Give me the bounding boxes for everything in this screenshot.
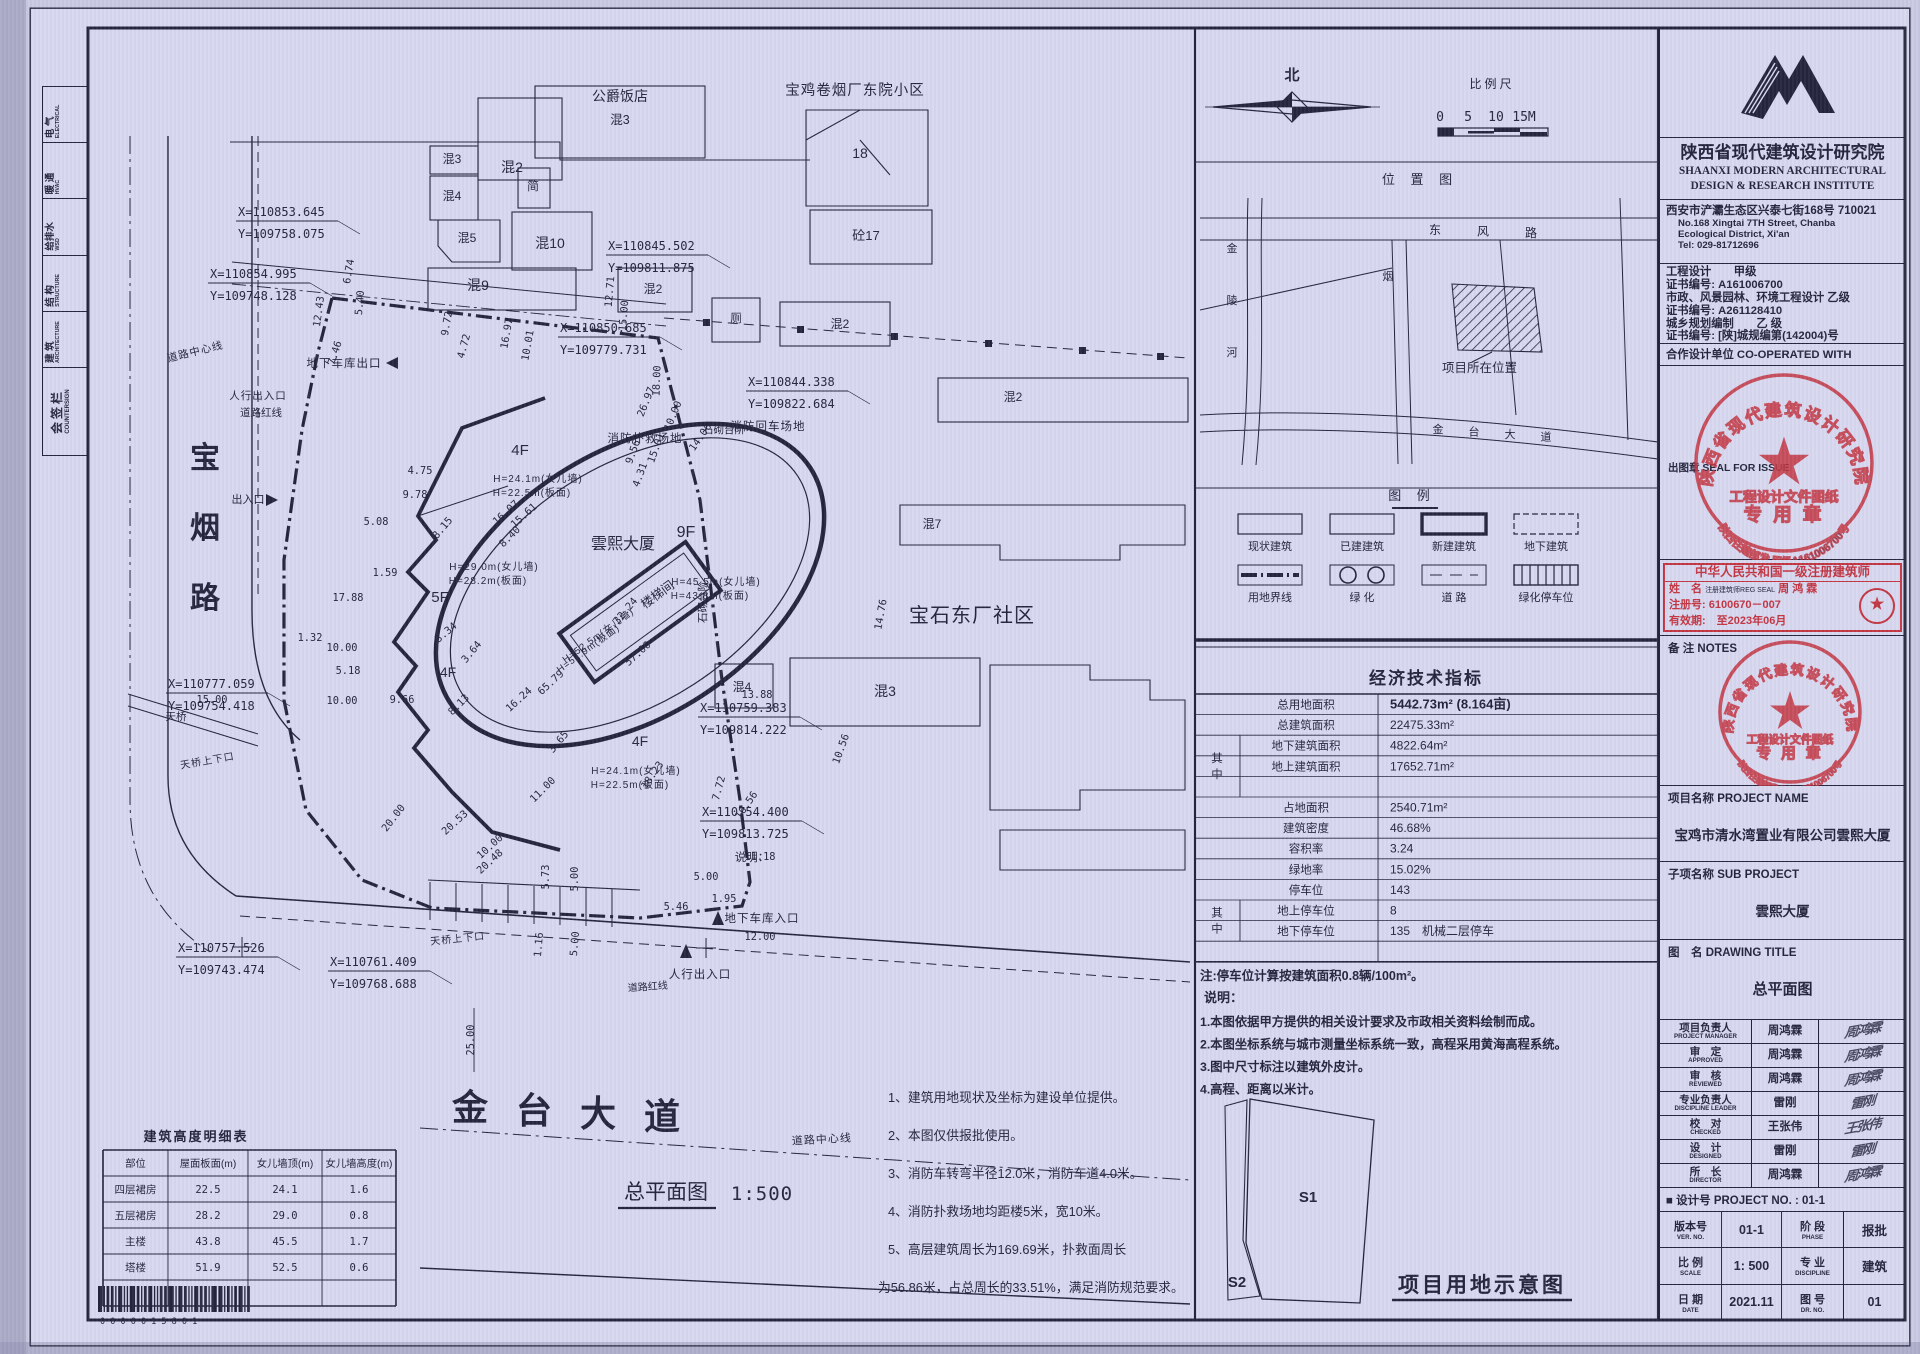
- plan-dimension: 5.18: [336, 665, 361, 677]
- plan-label: 宝鸡卷烟厂东院小区: [785, 82, 925, 99]
- plan-label: 道路中心线: [791, 1130, 852, 1147]
- economic-row-value: 2540.71m²: [1390, 801, 1447, 815]
- height-table-header: 女儿墙高度(m): [326, 1157, 393, 1170]
- qualification-line: 工程设计 甲级: [1666, 266, 1899, 279]
- location-map: [1200, 198, 1658, 465]
- coordinate-label: Y=109758.075: [238, 227, 325, 241]
- registered-architect-section: 中华人民共和国一级注册建筑师 姓 名 注册建筑师REG SEAL 周 鸿 霖 注…: [1660, 560, 1905, 636]
- plan-label: 混3: [874, 683, 896, 699]
- plan-label: 混2: [644, 282, 663, 296]
- plan-dimension: 65.79: [535, 668, 566, 698]
- plan-dimension: 25.00: [465, 1025, 477, 1056]
- company-address: 西安市浐灞生态区兴泰七街168号 710021 No.168 Xingtai 7…: [1660, 200, 1905, 264]
- plan-label: 台: [516, 1090, 552, 1131]
- signature-row: 所 长DIRECTOR周鸿霖周鸿霖: [1660, 1164, 1905, 1188]
- plan-note: 1、建筑用地现状及坐标为建设单位提供。: [888, 1090, 1125, 1105]
- map-road-label: 河: [1227, 346, 1238, 359]
- plan-dimension: 9.66: [390, 694, 415, 706]
- coordinate-label: X=110757.526: [178, 941, 265, 955]
- plan-label: 混3: [443, 152, 462, 166]
- plan-dimension: 5.73: [540, 865, 552, 890]
- general-note: 2.本图坐标系统与城市测量坐标系统一致，高程采用黄海高程系统。: [1200, 1037, 1567, 1052]
- coordinate-label: Y=109814.222: [700, 723, 787, 737]
- plan-dimension: 5.00: [569, 867, 581, 892]
- parcel-s2-label: S2: [1228, 1274, 1246, 1291]
- plan-label: 大: [580, 1093, 616, 1134]
- project-name-label: 项目名称 PROJECT NAME: [1668, 790, 1809, 806]
- qualification-line: 证书编号: [陕]城规编第(142004)号: [1666, 330, 1899, 343]
- plan-dimension: 15.00: [197, 694, 228, 706]
- issue-seal-section: 出图章 SEAL FOR ISSUE 陕西省现代建筑设计研究院工程设计文件图纸专…: [1660, 366, 1905, 560]
- scale-bar: 北比例尺051015M: [1284, 67, 1548, 136]
- qualification-line: 城乡规划编制 乙 级: [1666, 318, 1899, 331]
- plan-note: 4、消防扑救场地均距楼5米，宽10米。: [888, 1204, 1108, 1219]
- plan-label: 消防回车场地: [731, 419, 806, 433]
- plan-dimension: 17.88: [333, 592, 364, 604]
- plan-labels: 公爵饭店混3宝鸡卷烟厂东院小区混3混2简混4混5混10混9混218砼17厕混2混…: [166, 82, 1036, 1205]
- plan-label: 混3: [610, 113, 630, 127]
- height-table-cell: 主楼: [125, 1235, 146, 1248]
- plan-details: [232, 357, 724, 1072]
- plan-label: 公爵饭店: [592, 88, 648, 104]
- height-table-cell: 五层裙房: [115, 1209, 157, 1222]
- plan-label: 4F: [511, 442, 529, 459]
- barcode-digits: 0 0 0 0 0 1 5 8 0 1: [100, 1317, 197, 1327]
- plan-dimension: 20.00: [379, 802, 408, 834]
- land-diagram-title: 项目用地示意图: [1398, 1273, 1566, 1297]
- scale-tick: 5: [1464, 110, 1472, 125]
- economic-group-label: 中: [1211, 923, 1223, 936]
- plan-label: 地下车库入口: [725, 911, 800, 925]
- scan-edge-bottom: [0, 1342, 1920, 1354]
- coordinate-label: X=110845.502: [608, 239, 695, 253]
- plan-dimension: 5.00: [568, 931, 582, 957]
- map-road-label: 陵: [1227, 294, 1238, 307]
- qualification-line: 证书编号: A161006700: [1666, 279, 1899, 292]
- plan-label: 人行出入口: [229, 389, 287, 402]
- plan-note: 5、高层建筑周长为169.69米，扑救面周长: [888, 1242, 1126, 1257]
- site-boundary-line: [284, 298, 750, 918]
- coordinate-label: Y=109748.128: [210, 289, 297, 303]
- height-table-cell: 塔楼: [125, 1261, 146, 1274]
- plan-label: 天桥上下口: [179, 750, 235, 771]
- plan-label: 地下车库出口: [307, 356, 382, 370]
- coordinate-label: Y=109822.684: [748, 397, 835, 411]
- plan-label: 道路红线: [240, 406, 282, 419]
- economic-row-value: 46.68%: [1390, 821, 1431, 835]
- stamp-line: 专 用 章: [1744, 504, 1825, 525]
- map-road-label: 金: [1433, 422, 1444, 436]
- coordinate-callouts: X=110853.645Y=109758.075X=110854.995Y=10…: [166, 205, 870, 991]
- company-logo: [1660, 28, 1905, 138]
- height-table-header: 屋面板面(m): [180, 1157, 237, 1170]
- coordinate-label: X=110850.685: [560, 321, 647, 335]
- map-road-label: 东: [1429, 223, 1441, 237]
- height-table-title: 建筑高度明细表: [143, 1129, 248, 1144]
- coordinate-label: X=110759.383: [700, 701, 787, 715]
- plan-dimension: 3.64: [459, 639, 484, 666]
- plan-label: 混4: [443, 189, 462, 203]
- plan-dimension: 20.53: [439, 808, 470, 838]
- plan-label: 消防扑救场地: [608, 431, 683, 445]
- plan-dimension: 4.72: [455, 333, 473, 360]
- company-name-en: SHAANXI MODERN ARCHITECTURALDESIGN & RES…: [1660, 164, 1905, 200]
- economic-row-label: 地下建筑面积: [1272, 739, 1341, 753]
- coordinate-label: X=110777.059: [168, 677, 255, 691]
- plan-dimension: 5.00: [694, 871, 719, 883]
- signature-row: 设 计DESIGNED雷刚雷刚: [1660, 1140, 1905, 1164]
- plan-dimension: 5.08: [364, 516, 389, 528]
- economic-row-label: 地下停车位: [1277, 924, 1335, 938]
- drawing-sheet: X=110853.645Y=109758.075X=110854.995Y=10…: [0, 0, 1920, 1354]
- economic-row-value: 143: [1390, 883, 1410, 897]
- scale-tick: 15M: [1512, 110, 1536, 125]
- plan-dimension: 9.78: [403, 489, 428, 501]
- stamp-line: 工程设计文件图纸: [1747, 732, 1834, 746]
- signature-row: 校 对CHECKED王张伟王张伟: [1660, 1116, 1905, 1140]
- map-road-label: 大: [1505, 427, 1516, 441]
- plan-dimension: 5.40: [353, 290, 367, 316]
- economic-row-label: 总用地面积: [1277, 698, 1335, 712]
- height-table-cell: 1.6: [350, 1184, 369, 1196]
- map-road-label: 风: [1477, 225, 1489, 239]
- plan-dimension: 1.16: [532, 932, 546, 958]
- economic-row-label: 占地面积: [1283, 801, 1329, 815]
- plan-dimension: 3.34: [433, 620, 460, 645]
- land-use-diagram: [1225, 1099, 1572, 1303]
- plan-label: 混2: [501, 159, 523, 175]
- height-table-cell: 52.5: [272, 1262, 297, 1274]
- notes-title: 说明：: [1204, 990, 1243, 1005]
- height-table-cell: 29.0: [272, 1210, 297, 1222]
- general-note: 4.高程、距离以米计。: [1200, 1082, 1321, 1097]
- coordinate-label: Y=109779.731: [560, 343, 647, 357]
- economic-row-label: 地上停车位: [1277, 904, 1335, 918]
- version-scale-grid: 版本号VER. NO.01-1阶 段PHASE报批比 例SCALE1: 500专…: [1660, 1212, 1905, 1320]
- plan-label: 4F: [632, 733, 648, 749]
- grid-row: 日 期DATE2021.11图 号DR. NO.01: [1660, 1285, 1905, 1320]
- plan-dimension: 11.00: [528, 775, 558, 805]
- map-road-label: 台: [1469, 425, 1480, 439]
- coordinate-label: Y=109811.875: [608, 261, 695, 275]
- plan-dimension: 9.72: [439, 310, 455, 337]
- plan-notes: 1、建筑用地现状及坐标为建设单位提供。2、本图仅供报批使用。3、消防车转弯半径1…: [878, 1090, 1184, 1295]
- middle-panel-rules: [1195, 162, 1658, 1078]
- general-notes: 注:停车位计算按建筑面积0.8辆/100m²。说明：1.本图依据甲方提供的相关设…: [1200, 968, 1567, 1097]
- plan-label: 9F: [677, 524, 696, 541]
- scale-tick: 0: [1436, 110, 1444, 125]
- sub-project-value: 雲熙大厦: [1660, 900, 1905, 920]
- plan-label: 路: [190, 582, 221, 615]
- qualification-line: 市政、风景园林、环境工程设计 乙级: [1666, 292, 1899, 305]
- signature-row: 项目负责人PROJECT MANAGER周鸿霖周鸿霖: [1660, 1020, 1905, 1044]
- plan-label: H=28.2m(板面): [449, 574, 528, 587]
- plan-label: 砼17: [852, 228, 879, 243]
- cooperation-label: 合作设计单位 CO-OPERATED WITH: [1660, 344, 1905, 366]
- plan-label: 烟: [190, 512, 220, 545]
- qualifications: 工程设计 甲级证书编号: A161006700市政、风景园林、环境工程设计 乙级…: [1660, 264, 1905, 344]
- countersign-title: 会签栏 COUNTERSIGN: [43, 367, 87, 455]
- signature-row: 审 定APPROVED周鸿霖周鸿霖: [1660, 1044, 1905, 1068]
- plan-dimension: 16.97: [498, 317, 515, 350]
- plan-label: 宝石东厂社区: [909, 604, 1035, 627]
- drawing-title-value: 总平面图: [1660, 978, 1905, 999]
- title-block: 陕西省现代建筑设计研究院 SHAANXI MODERN ARCHITECTURA…: [1658, 28, 1905, 1320]
- plan-dimension: 5.46: [664, 901, 689, 913]
- plan-note: 3、消防车转弯半径12.0米，消防车道4.0米。: [888, 1166, 1143, 1181]
- coordinate-label: Y=109743.474: [178, 963, 265, 977]
- notes-section: 备 注 NOTES 陕西省现代建筑设计研究院工程设计文件图纸专 用 章陕西住建部…: [1660, 636, 1905, 786]
- plan-dimension: 10.00: [327, 695, 358, 707]
- notes-round-stamp: 陕西省现代建筑设计研究院工程设计文件图纸专 用 章陕西住建部发 甲级A16100…: [1690, 636, 1890, 786]
- height-table-cell: 0.8: [350, 1210, 369, 1222]
- economic-row-label: 容积率: [1289, 842, 1324, 856]
- signature-row: 审 核REVIEWED周鸿霖周鸿霖: [1660, 1068, 1905, 1092]
- plan-dimension: 6.74: [341, 258, 357, 285]
- plan-dimension: 1.95: [712, 893, 737, 905]
- plan-label: H=24.1m(女儿墙): [493, 472, 583, 485]
- economic-row-label: 停车位: [1289, 883, 1324, 897]
- plan-label: 18: [852, 145, 868, 161]
- economic-row-value: 5442.73m² (8.164亩): [1390, 697, 1511, 712]
- map-road-label: 金: [1227, 241, 1238, 255]
- economic-group-label: 其: [1211, 907, 1223, 920]
- parcel-s1-label: S1: [1299, 1189, 1317, 1206]
- plan-dimension: 16.24: [503, 685, 534, 715]
- parking-note: 注:停车位计算按建筑面积0.8辆/100m²。: [1200, 968, 1424, 983]
- economic-row-label: 绿地率: [1289, 862, 1324, 876]
- neighbor-buildings: [230, 86, 1188, 870]
- countersign-discipline: 建 筑ARCHITECTURE: [43, 311, 87, 367]
- plan-dimension: 10.01: [519, 329, 536, 362]
- economic-row-value: 135 机械二层停车: [1390, 923, 1494, 938]
- company-name-cn: 陕西省现代建筑设计研究院: [1660, 138, 1905, 164]
- plan-label: 1:500: [731, 1183, 793, 1205]
- land-use-diagram-labels: S1S2项目用地示意图: [1228, 1189, 1566, 1297]
- general-note: 1.本图依据甲方提供的相关设计要求及市政相关资料绘制而成。: [1200, 1014, 1542, 1029]
- map-road-label: 路: [1525, 225, 1537, 240]
- plan-label: 混10: [535, 235, 565, 251]
- sub-project-label: 子项名称 SUB PROJECT: [1668, 866, 1799, 882]
- countersign-discipline: 给排水WSD: [43, 198, 87, 254]
- economic-indicator-table: 经济技术指标总用地面积5442.73m² (8.164亩)总建筑面积22475.…: [1195, 668, 1658, 962]
- plan-label: 简: [527, 179, 539, 193]
- grid-row: 比 例SCALE1: 500专 业DISCIPLINE建筑: [1660, 1248, 1905, 1284]
- plan-label: H=43.8m(板面): [671, 589, 750, 602]
- plan-label: 4F: [440, 664, 456, 680]
- economic-row-label: 总建筑面积: [1277, 718, 1335, 732]
- economic-row-value: 15.02%: [1390, 862, 1431, 876]
- plan-dimension: 13.88: [742, 689, 773, 701]
- economic-row-value: 22475.33m²: [1390, 718, 1454, 732]
- countersign-strip: 会签栏 COUNTERSIGN 建 筑ARCHITECTURE结 构STRUCT…: [42, 86, 88, 456]
- plan-label: 金: [451, 1087, 489, 1128]
- plan-dimension: 12.43: [311, 295, 327, 327]
- building-height-table: 建筑高度明细表部位屋面板面(m)女儿墙顶(m)女儿墙高度(m)四层裙房22.52…: [103, 1129, 396, 1306]
- plan-dimension: 4.75: [408, 465, 433, 477]
- plan-dimension: 10.56: [830, 732, 852, 765]
- plan-label: 道路红线: [627, 979, 668, 995]
- plan-dimension: 1.59: [373, 567, 398, 579]
- height-table-cell: 22.5: [195, 1184, 220, 1196]
- plan-label: 出入口: [232, 492, 265, 506]
- location-map-title: 位 置 图: [1382, 172, 1458, 187]
- legend-label: 新建建筑: [1432, 539, 1476, 553]
- plan-dimension: 1.32: [298, 632, 323, 644]
- sub-project-section: 子项名称 SUB PROJECT 雲熙大厦: [1660, 862, 1905, 940]
- map-road-label: 烟: [1383, 269, 1394, 283]
- architect-emblem-icon: ★: [1859, 588, 1895, 624]
- plan-label: H=22.5m(板面): [591, 778, 670, 791]
- coordinate-label: Y=109768.688: [330, 977, 417, 991]
- legend-label: 已建建筑: [1340, 539, 1384, 553]
- plan-label: 宝: [190, 441, 220, 475]
- legend-label: 道 路: [1441, 590, 1466, 604]
- map-road-label: 道: [1541, 430, 1552, 444]
- height-table-cell: 43.8: [195, 1236, 220, 1248]
- plan-label: H=24.1m(女儿墙): [591, 764, 681, 777]
- grid-row: 版本号VER. NO.01-1阶 段PHASE报批: [1660, 1212, 1905, 1248]
- plan-label: 混2: [1004, 390, 1023, 404]
- scale-bar-title: 比例尺: [1469, 77, 1514, 91]
- north-label: 北: [1284, 67, 1299, 84]
- countersign-discipline: 电 气ELECTRICAL: [43, 87, 87, 142]
- drawing-title-label: 图 名 DRAWING TITLE: [1668, 944, 1796, 960]
- plan-label: 道: [644, 1096, 680, 1137]
- countersign-discipline: 结 构STRUCTURE: [43, 255, 87, 311]
- plan-dimension: 12.00: [745, 931, 776, 943]
- legend-label: 现状建筑: [1248, 539, 1292, 553]
- stamp-line: 工程设计文件图纸: [1730, 489, 1839, 505]
- coordinate-label: X=110761.409: [330, 955, 417, 969]
- general-note: 3.图中尺寸标注以建筑外皮计。: [1200, 1059, 1370, 1074]
- architect-box-header: 中华人民共和国一级注册建筑师: [1665, 565, 1900, 582]
- signature-table: 项目负责人PROJECT MANAGER周鸿霖周鸿霖审 定APPROVED周鸿霖…: [1660, 1020, 1905, 1188]
- plan-label: H=29.0m(女儿墙): [449, 560, 539, 573]
- project-no-row: ■ 设计号 PROJECT NO. : 01-1: [1660, 1188, 1905, 1212]
- plan-label: 雲熙大厦: [591, 535, 655, 553]
- economic-group-label: 其: [1211, 752, 1223, 765]
- project-name-section: 项目名称 PROJECT NAME 宝鸡市清水湾置业有限公司雲熙大厦: [1660, 786, 1905, 862]
- countersign-discipline: 暖 通HVAC: [43, 142, 87, 198]
- plan-label: 5F: [431, 589, 449, 606]
- site-plan-drawing: X=110853.645Y=109758.075X=110854.995Y=10…: [0, 0, 1920, 1354]
- plan-dimension: 11.18: [745, 851, 776, 863]
- coordinate-label: X=110853.645: [238, 205, 325, 219]
- plan-label: 道路中心线: [166, 338, 225, 365]
- plan-label: 天桥: [166, 711, 187, 723]
- project-name-value: 宝鸡市清水湾置业有限公司雲熙大厦: [1660, 824, 1905, 844]
- plan-note: 为56.86米，占总周长的33.51%，满足消防规范要求。: [878, 1280, 1184, 1295]
- legend-label: 地下建筑: [1524, 539, 1568, 553]
- scale-tick: 10: [1488, 110, 1504, 125]
- height-table-cell: 51.9: [195, 1262, 220, 1274]
- economic-group-label: 中: [1211, 768, 1223, 781]
- coordinate-label: Y=109813.725: [702, 827, 789, 841]
- height-table-cell: 1.7: [350, 1236, 369, 1248]
- legend: 图 例现状建筑已建建筑新建建筑地下建筑用地界线绿 化道 路绿化停车位: [1238, 488, 1578, 604]
- coordinate-label: X=110844.338: [748, 375, 835, 389]
- height-table-cell: 24.1: [272, 1184, 297, 1196]
- height-table-header: 女儿墙顶(m): [257, 1157, 314, 1170]
- economic-row-value: 3.24: [1390, 842, 1414, 856]
- drawing-title-section: 图 名 DRAWING TITLE 总平面图: [1660, 940, 1905, 1020]
- plan-label: H=45.5m(女儿墙): [671, 575, 761, 588]
- plan-label: 混9: [467, 277, 489, 293]
- legend-label: 用地界线: [1248, 590, 1292, 604]
- height-table-cell: 0.6: [350, 1262, 369, 1274]
- plan-dimension: 14.76: [872, 598, 889, 631]
- legend-label: 绿化停车位: [1519, 590, 1574, 604]
- economic-row-value: 4822.64m²: [1390, 739, 1447, 753]
- signature-row: 专业负责人DISCIPLINE LEADER雷刚雷刚: [1660, 1092, 1905, 1116]
- legend-label: 绿 化: [1349, 590, 1374, 604]
- economic-row-value: 17652.71m²: [1390, 759, 1454, 773]
- north-compass: [1205, 92, 1380, 122]
- plan-label: 人行出入口: [669, 967, 732, 981]
- plan-dimension: 7.72: [710, 775, 728, 802]
- qualification-line: 证书编号: A261128410: [1666, 305, 1899, 318]
- plan-label: 混2: [831, 317, 850, 331]
- plan-dimension: 57.00: [622, 639, 653, 669]
- plan-label: H=22.5m(板面): [493, 486, 572, 499]
- height-table-cell: 四层裙房: [115, 1183, 157, 1196]
- plan-label: 天桥上下口: [430, 930, 486, 948]
- scan-edge-left: [0, 0, 26, 1354]
- coordinate-label: X=110854.995: [210, 267, 297, 281]
- height-table-cell: 28.2: [195, 1210, 220, 1222]
- economic-table-title: 经济技术指标: [1369, 668, 1483, 688]
- legend-title: 图 例: [1388, 488, 1436, 503]
- company-round-stamp: 陕西省现代建筑设计研究院工程设计文件图纸专 用 章陕西住建部发 甲级A16100…: [1666, 366, 1902, 560]
- plan-note: 2、本图仅供报批使用。: [888, 1128, 1023, 1143]
- stamp-line: 专 用 章: [1756, 744, 1823, 762]
- plan-label: 混5: [458, 231, 477, 245]
- plan-dimension: 10.00: [327, 642, 358, 654]
- plan-dimension: 26.97: [635, 385, 658, 418]
- economic-row-label: 建筑密度: [1283, 821, 1329, 835]
- plan-dimension: 12.71: [603, 276, 618, 308]
- plan-label: 厕: [730, 312, 742, 325]
- economic-row-value: 8: [1390, 904, 1397, 918]
- map-marker-label: 项目所在位置: [1442, 360, 1517, 375]
- plan-label: 混7: [923, 517, 942, 531]
- plan-label: 总平面图: [624, 1181, 708, 1204]
- height-table-cell: 45.5: [272, 1236, 297, 1248]
- architect-seal-box: 中华人民共和国一级注册建筑师 姓 名 注册建筑师REG SEAL 周 鸿 霖 注…: [1663, 563, 1902, 632]
- utility-line: [664, 318, 1188, 360]
- plan-dimension: 8.15: [430, 515, 455, 542]
- height-table-header: 部位: [125, 1157, 146, 1170]
- economic-row-label: 地上建筑面积: [1272, 759, 1341, 773]
- svg-text:陕西住建部发 甲级A161006700号: 陕西住建部发 甲级A161006700号: [1716, 522, 1853, 560]
